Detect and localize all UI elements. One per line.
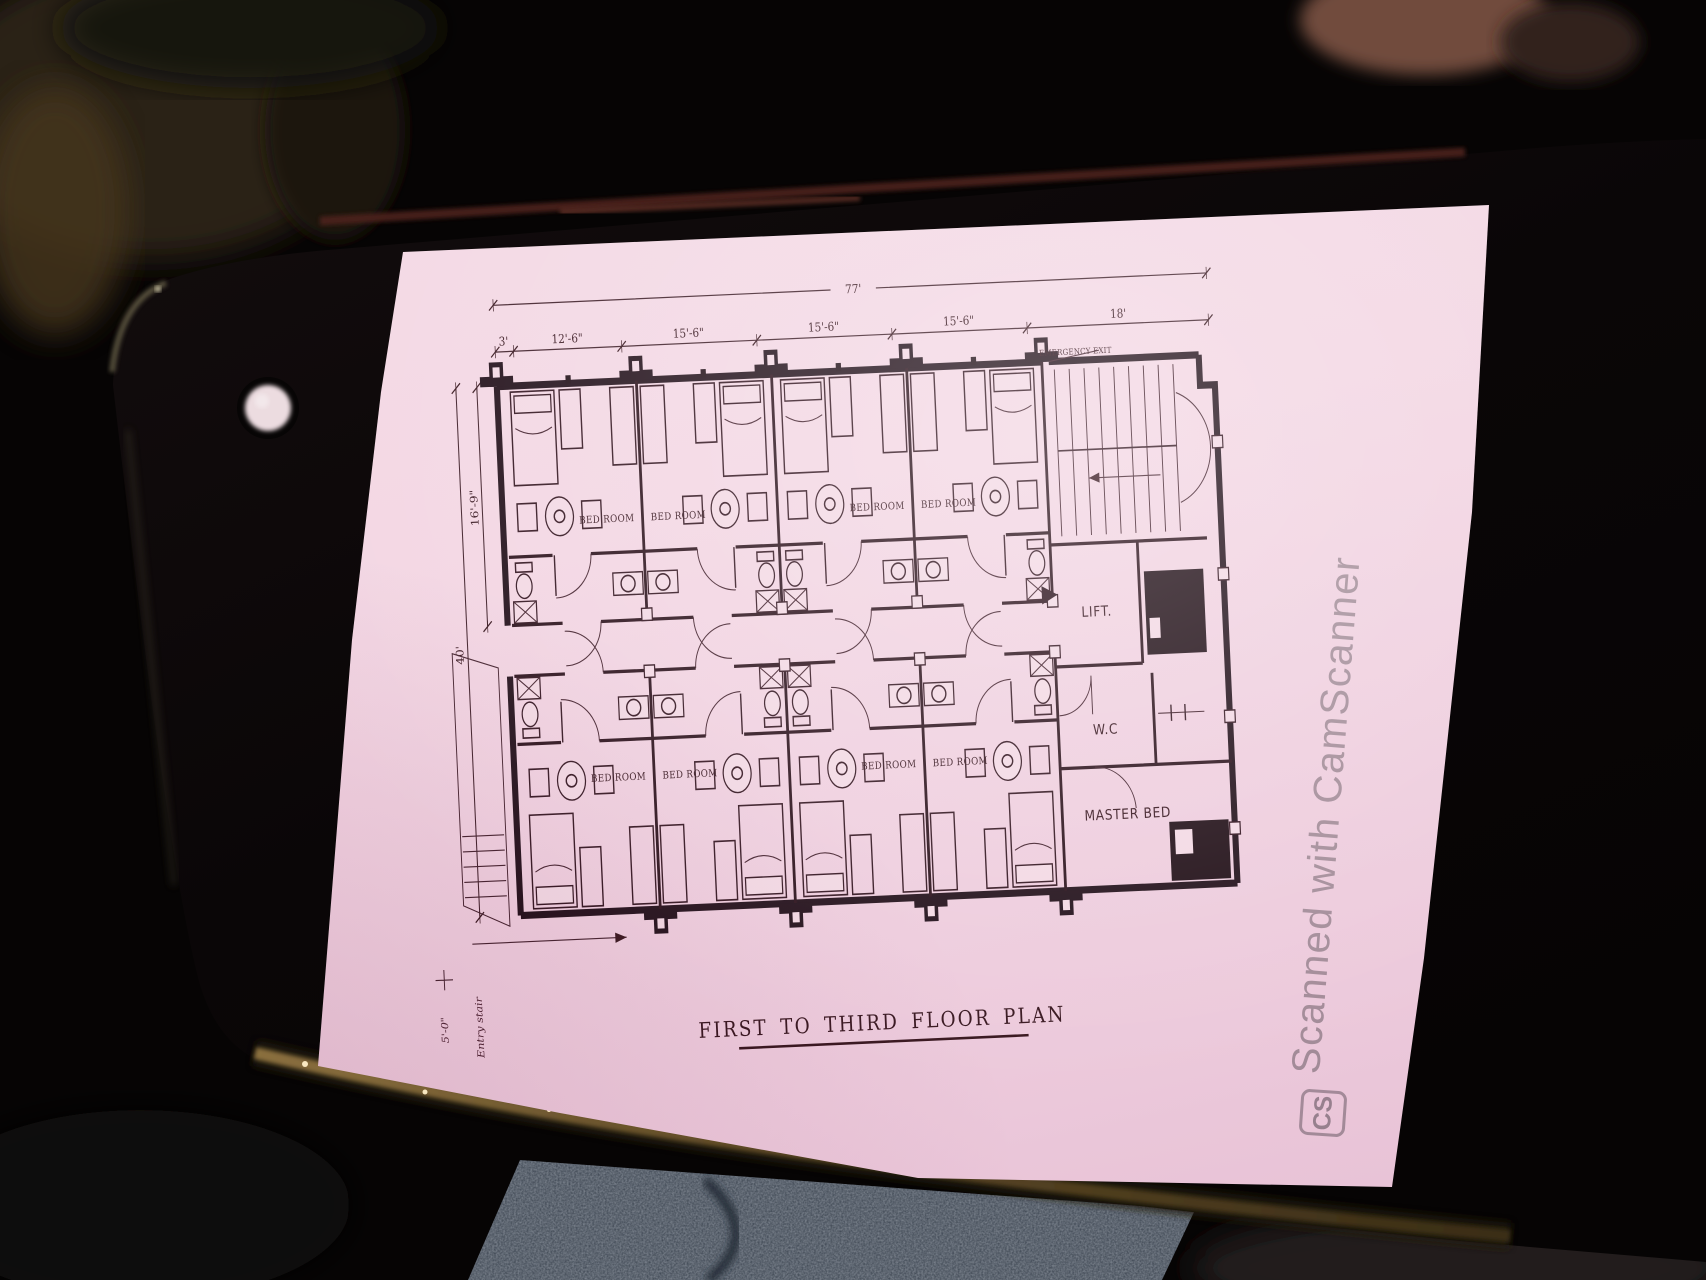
phone-camera-icon: [237, 377, 299, 439]
photo-of-phone: 77' 3' 12'-6" 15'-6" 15'-6" 15'-6" 18' 1…: [0, 0, 1706, 1280]
